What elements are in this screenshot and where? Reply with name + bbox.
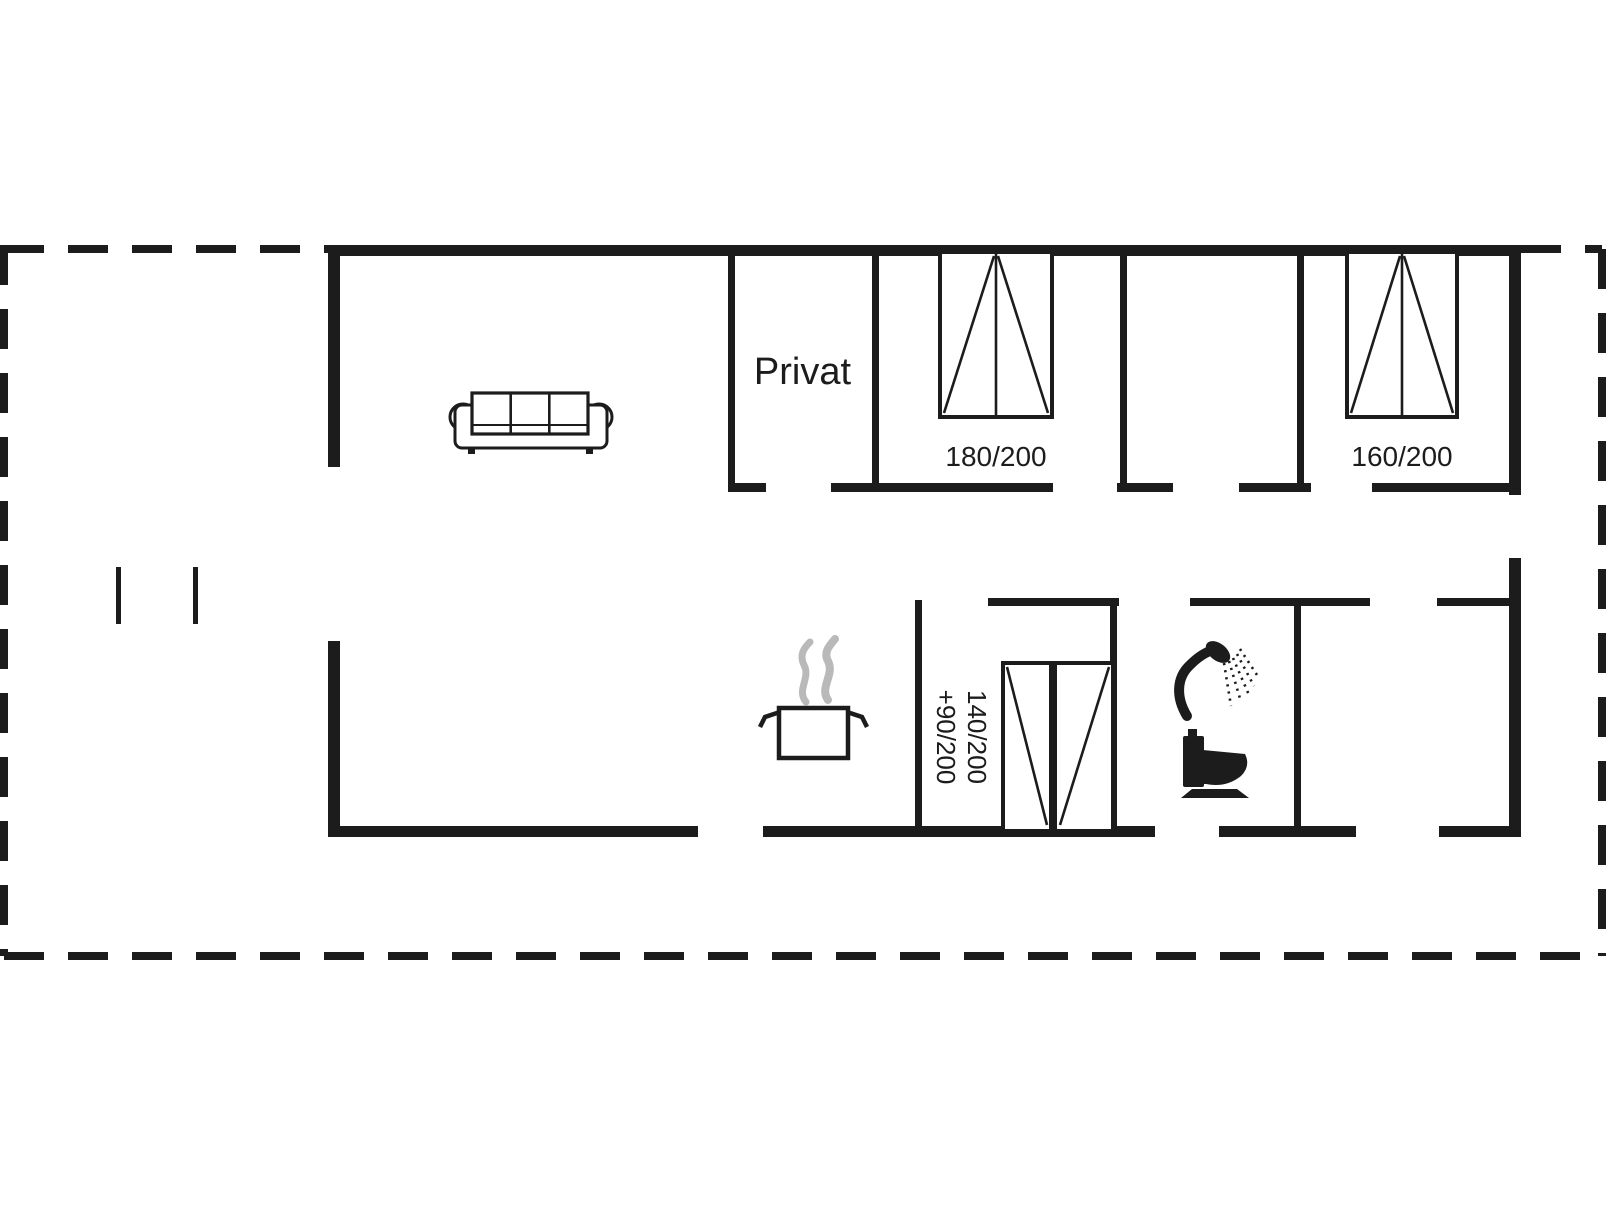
bed-divider (1049, 663, 1057, 831)
wall-segment (1117, 483, 1173, 492)
wall-segment (1219, 826, 1356, 837)
bathroom-icons (1179, 637, 1257, 798)
terrace-mark (116, 567, 121, 624)
wall-segment (328, 826, 698, 837)
steam-icon (802, 639, 835, 702)
shower-icon (1179, 637, 1257, 716)
shower-spray (1237, 654, 1254, 686)
bed-size-label-160: 160/200 (1336, 441, 1468, 473)
floor-plan: Privat 180/200 160/200 140/200 +90/200 (0, 0, 1606, 1205)
wall-segment (831, 483, 1053, 492)
shower-spray (1240, 649, 1257, 675)
wall-segment (328, 245, 1521, 256)
sofa-icon (450, 393, 612, 454)
wall-segment (1297, 245, 1304, 491)
sofa-cushions (472, 393, 588, 434)
sofa-foot (586, 448, 593, 454)
wall-segment (1372, 483, 1521, 492)
cooking-pot-icon (760, 708, 867, 758)
wall-segment (328, 245, 340, 467)
pot-body (779, 708, 848, 758)
bed-outline (1003, 663, 1113, 831)
toilet-tank (1183, 736, 1204, 787)
wall-segment (1120, 245, 1127, 491)
exterior-walls (328, 245, 1521, 837)
wall-segment (988, 598, 1119, 606)
bed-size-label-140-90: 140/200 +90/200 (928, 685, 992, 789)
shower-spray (1233, 658, 1249, 695)
double-bed-180-icon (940, 252, 1052, 417)
wall-segment (1294, 600, 1301, 837)
toilet-base (1181, 789, 1249, 798)
floor-plan-drawing (0, 0, 1606, 1205)
wall-segment (915, 600, 922, 837)
shower-arm (1179, 650, 1213, 716)
wall-segment (1509, 245, 1521, 495)
wall-segment (728, 483, 766, 492)
sofa-foot (468, 448, 475, 454)
shower-spray (1229, 661, 1241, 702)
toilet-icon (1181, 729, 1249, 798)
wall-segment (328, 641, 340, 837)
double-bed-160-icon (1347, 252, 1457, 417)
wall-segment (1437, 598, 1521, 606)
bed-140-90-icon (1003, 663, 1113, 831)
kitchen-icons (760, 639, 867, 758)
bed-size-label-line1: 140/200 (961, 685, 992, 789)
terrace-entrance-marks (116, 567, 198, 624)
room-label-privat: Privat (730, 351, 875, 394)
shower-spray (1224, 663, 1231, 706)
steam-wisp (825, 639, 835, 700)
toilet-bowl (1203, 750, 1247, 785)
wall-segment (1190, 598, 1370, 606)
wall-segment (1439, 826, 1521, 837)
terrace-mark (193, 567, 198, 624)
steam-wisp (802, 642, 810, 702)
bed-size-label-180: 180/200 (930, 441, 1062, 473)
bed-size-label-line2: +90/200 (930, 685, 961, 789)
toilet-button (1188, 729, 1197, 737)
wall-segment (1239, 483, 1311, 492)
